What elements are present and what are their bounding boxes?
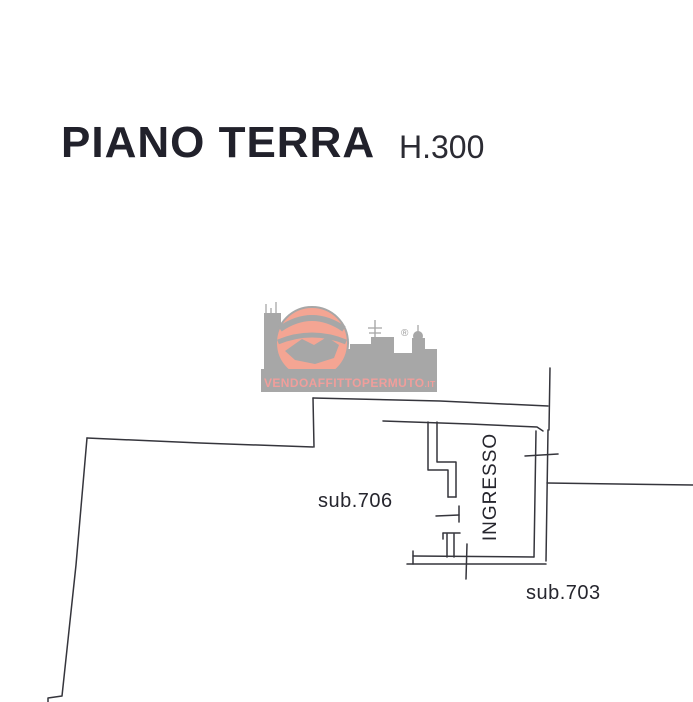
exterior-walls bbox=[48, 368, 693, 702]
wall-line bbox=[313, 398, 314, 447]
door-dash bbox=[436, 515, 459, 516]
wall-line bbox=[437, 422, 456, 497]
room-label-sub706: sub.706 bbox=[318, 490, 393, 513]
wall-line bbox=[313, 398, 548, 406]
wall-line bbox=[549, 368, 550, 430]
document-page: PIANO TERRA H.300 bbox=[0, 0, 693, 702]
wall-line bbox=[534, 431, 536, 557]
scanned-floorplan-page: { "header": { "title": "PIANO TERRA", "h… bbox=[0, 0, 693, 702]
wall-line bbox=[383, 421, 543, 431]
wall-line bbox=[87, 438, 313, 447]
room-label-ingresso: INGRESSO bbox=[480, 433, 502, 541]
wall-line bbox=[48, 438, 87, 702]
wall-line bbox=[413, 556, 534, 557]
wall-line bbox=[428, 422, 448, 497]
wall-line bbox=[547, 483, 693, 485]
opening-tick bbox=[525, 454, 558, 456]
interior-walls bbox=[383, 421, 548, 564]
room-label-sub703: sub.703 bbox=[526, 582, 601, 605]
wall-line bbox=[546, 430, 548, 561]
opening-tick bbox=[466, 544, 467, 579]
